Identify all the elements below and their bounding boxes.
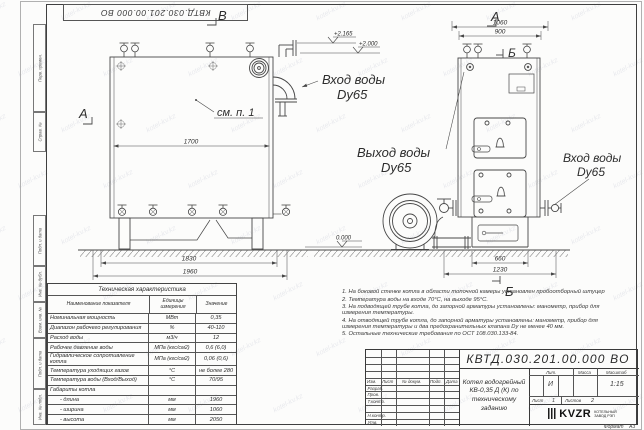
tb-scale-value: 1:15 bbox=[610, 381, 624, 388]
spec-table-rows: Номинальная мощностьМВт0,35 Диапазон раб… bbox=[48, 314, 236, 424]
table-row: - ширинамм1060 bbox=[48, 405, 236, 415]
margin-label: Подп. и дата bbox=[37, 350, 42, 376]
margin-box-inv-dubl: Инв. № дубл. bbox=[33, 266, 46, 302]
spec-table-header: Наименование показателя Единицы измерени… bbox=[48, 296, 236, 314]
svg-text:Вход воды: Вход воды bbox=[322, 72, 386, 87]
margin-box-inv-podl: Инв. № подл. bbox=[33, 389, 46, 425]
note-1: 1. На боковой стенке котла в области топ… bbox=[342, 289, 626, 295]
tb-lit-value: И bbox=[548, 381, 553, 388]
tb-scale-label: Масштаб bbox=[606, 370, 627, 375]
dim-1230: 1230 bbox=[493, 267, 508, 274]
dim-660: 660 bbox=[495, 256, 506, 263]
dim-900: 900 bbox=[495, 29, 506, 36]
tb-sheets-value: 2 bbox=[591, 398, 594, 404]
table-row: - высотамм2050 bbox=[48, 415, 236, 424]
see-note-text: см. п. 1 bbox=[217, 107, 254, 119]
company-logo: KVZR КОТЕЛЬНЫЙ ЗАВОД РЭП bbox=[529, 404, 636, 423]
note-4: 4. На отводящей трубе котла, до запорной… bbox=[342, 318, 626, 330]
kvzr-subtitle-line: КОТЕЛЬНЫЙ bbox=[594, 410, 617, 414]
tb-sheet-value: 1 bbox=[552, 398, 555, 404]
table-row: Температура уходящих газов°Сне более 280 bbox=[48, 366, 236, 376]
note-3: 3. На подводящей трубе котла, до запорно… bbox=[342, 304, 626, 316]
dim-1960: 1960 bbox=[183, 269, 198, 276]
table-row: Номинальная мощностьМВт0,35 bbox=[48, 314, 236, 324]
kvzr-subtitle: КОТЕЛЬНЫЙ ЗАВОД РЭП bbox=[594, 410, 617, 418]
margin-box-podp-data-1: Подп. и дата bbox=[33, 215, 46, 266]
margin-label: Подп. и дата bbox=[37, 227, 42, 253]
tb-sheets-label: Листов bbox=[565, 398, 581, 403]
margin-label: Взам. инв. № bbox=[37, 307, 42, 333]
outlet-flange-valve bbox=[437, 199, 456, 216]
tb-col-list: Лист bbox=[382, 379, 393, 384]
table-row: Диапазон рабочего регулирования%40-110 bbox=[48, 324, 236, 334]
dim-1700: 1700 bbox=[184, 139, 199, 146]
view-label-B: В bbox=[218, 8, 227, 23]
tb-mass-label: Масса bbox=[578, 370, 591, 375]
tb-col-izm: Изм. bbox=[367, 379, 376, 384]
watermark-text: kotel-kv.kz bbox=[0, 337, 7, 358]
inlet-right-label: Вход воды Dу65 bbox=[554, 151, 621, 205]
spec-table-title: Техническая характеристика bbox=[48, 284, 236, 296]
doc-name: Котел водогрейный КВ-0,35 Д (К) по техни… bbox=[459, 369, 529, 423]
spec-col-value: Значение bbox=[197, 296, 236, 313]
svg-text:Dу65: Dу65 bbox=[337, 87, 368, 102]
right-view bbox=[437, 44, 561, 247]
margin-label: Справ. № bbox=[37, 122, 42, 141]
view-label-A-right: А bbox=[490, 9, 500, 24]
watermark-text: kotel-kv.kz bbox=[0, 113, 7, 134]
elevation-0000 bbox=[305, 241, 362, 247]
lower-door bbox=[472, 170, 526, 217]
table-row: Габариты котла bbox=[48, 386, 236, 396]
tb-lit-label: Лит. bbox=[546, 370, 556, 375]
table-row: - длинамм1960 bbox=[48, 396, 236, 406]
margin-label: Инв. № дубл. bbox=[37, 271, 42, 297]
format-value: А3 bbox=[629, 424, 635, 430]
tb-sheet-label: Лист bbox=[532, 398, 543, 403]
see-note-callout: см. п. 1 bbox=[195, 99, 263, 119]
format-word: Формат bbox=[604, 424, 624, 430]
spec-col-units: Единицы измерения bbox=[150, 296, 197, 313]
margin-box-sprav-no: Справ. № bbox=[33, 112, 46, 152]
elev-mid-text: +2.000 bbox=[359, 42, 378, 48]
outlet-label: Выход воды Dу65 bbox=[357, 72, 464, 175]
inlet-top-label: Вход воды Dу65 bbox=[302, 72, 386, 102]
tb-role-tkontr: Т.контр. bbox=[368, 399, 386, 404]
svg-text:Выход воды: Выход воды bbox=[357, 145, 431, 160]
svg-text:Вход воды: Вход воды bbox=[563, 151, 621, 165]
elevation-2000 bbox=[300, 47, 380, 53]
table-row: Температура воды (Вход/Выход)°С70/95 bbox=[48, 376, 236, 386]
svg-text:Dу65: Dу65 bbox=[577, 165, 605, 179]
note-5: 5. Остальные технические требования по О… bbox=[342, 331, 626, 337]
pedestal bbox=[472, 217, 528, 247]
view-label-B-side: Б bbox=[508, 46, 516, 60]
margin-label: Перв. примен. bbox=[37, 54, 42, 82]
view-label-A-left: А bbox=[78, 106, 88, 121]
title-block: Изм. Лист № докум. Подп. Дата Разраб. Пр… bbox=[365, 349, 638, 425]
tb-col-data: Дата bbox=[446, 379, 458, 384]
svg-text:Dу65: Dу65 bbox=[381, 160, 412, 175]
tb-col-podp: Подп. bbox=[430, 379, 442, 384]
elevation-2165 bbox=[297, 37, 356, 43]
table-row: Рабочее давление водыМПа (кгс/см2)0,6 (6… bbox=[48, 343, 236, 353]
dim-1830: 1830 bbox=[182, 256, 197, 263]
format-label: Формат А3 bbox=[560, 424, 638, 430]
watermark-text: kotel-kv.kz bbox=[0, 225, 7, 246]
doc-name-line: техническому заданию bbox=[459, 396, 529, 413]
margin-box-vzam-inv: Взам. инв. № bbox=[33, 302, 46, 338]
elev-zero-text: 0.000 bbox=[336, 236, 352, 242]
doc-name-line: КВ-0,35 Д (К) по bbox=[469, 387, 518, 396]
tb-role-utv: Утв. bbox=[368, 420, 378, 425]
spec-table: Техническая характеристика Наименование … bbox=[47, 283, 237, 425]
kvzr-subtitle-line: ЗАВОД РЭП bbox=[594, 414, 617, 418]
drawing-sheet: kotel-kv.kzkotel-kv.kzkotel-kv.kzkotel-k… bbox=[0, 0, 644, 430]
spec-col-name: Наименование показателя bbox=[48, 296, 150, 313]
inlet-pipe bbox=[273, 40, 297, 116]
tb-col-docnum: № докум. bbox=[402, 379, 421, 384]
margin-box-podp-data-2: Подп. и дата bbox=[33, 338, 46, 389]
watermark-text: kotel-kv.kz bbox=[0, 1, 7, 22]
boiler-drawing: 1700 1830 1960 В А см. п. 1 +2.165 +2.00… bbox=[48, 4, 640, 304]
note-2: 2. Температура воды на входе 70°С, на вы… bbox=[342, 297, 626, 303]
upper-door bbox=[472, 118, 526, 158]
doc-number: КВТД.030.201.00.000 ВО bbox=[459, 350, 637, 368]
left-view bbox=[110, 40, 297, 249]
tb-role-prov: Пров. bbox=[368, 392, 380, 397]
flue-flange bbox=[250, 59, 269, 78]
doc-name-line: Котел водогрейный bbox=[463, 379, 526, 388]
kvzr-bars-icon bbox=[548, 408, 556, 419]
table-row: Расход водым3/ч12 bbox=[48, 334, 236, 344]
elev-high-text: +2.165 bbox=[334, 32, 353, 38]
technical-notes: 1. На боковой стенке котла в области топ… bbox=[342, 289, 626, 339]
tb-role-razrab: Разраб. bbox=[368, 386, 384, 391]
tb-role-nkontr: Н.контр. bbox=[368, 413, 387, 418]
margin-box-perv-primen: Перв. примен. bbox=[33, 24, 46, 112]
table-row: Гидравлическое сопротивление котлаМПа (к… bbox=[48, 353, 236, 366]
margin-label: Инв. № подл. bbox=[37, 394, 42, 420]
kvzr-wordmark: KVZR bbox=[559, 408, 591, 420]
